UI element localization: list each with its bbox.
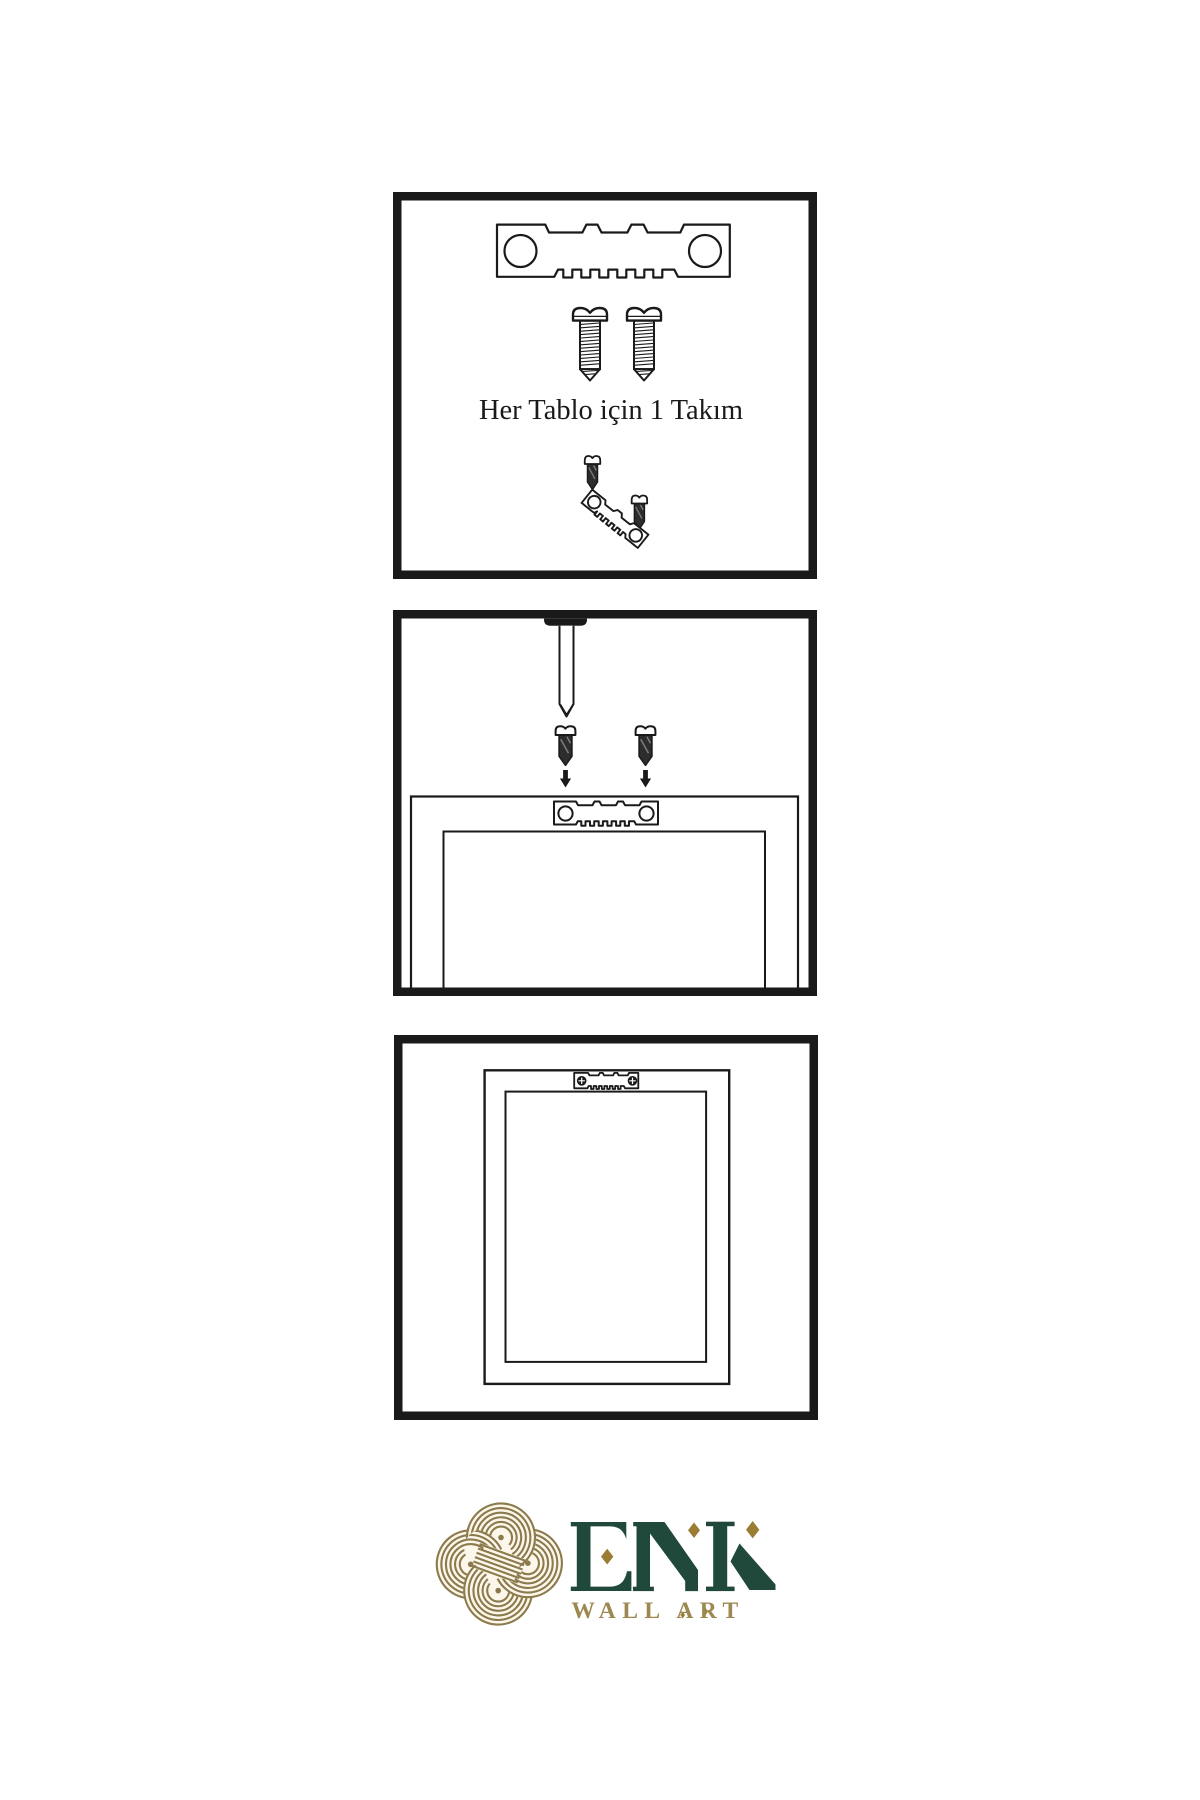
svg-text:Her Tablo için 1 Takım: Her Tablo için 1 Takım [479, 395, 743, 426]
svg-text:WALL ART: WALL ART [571, 1598, 744, 1624]
